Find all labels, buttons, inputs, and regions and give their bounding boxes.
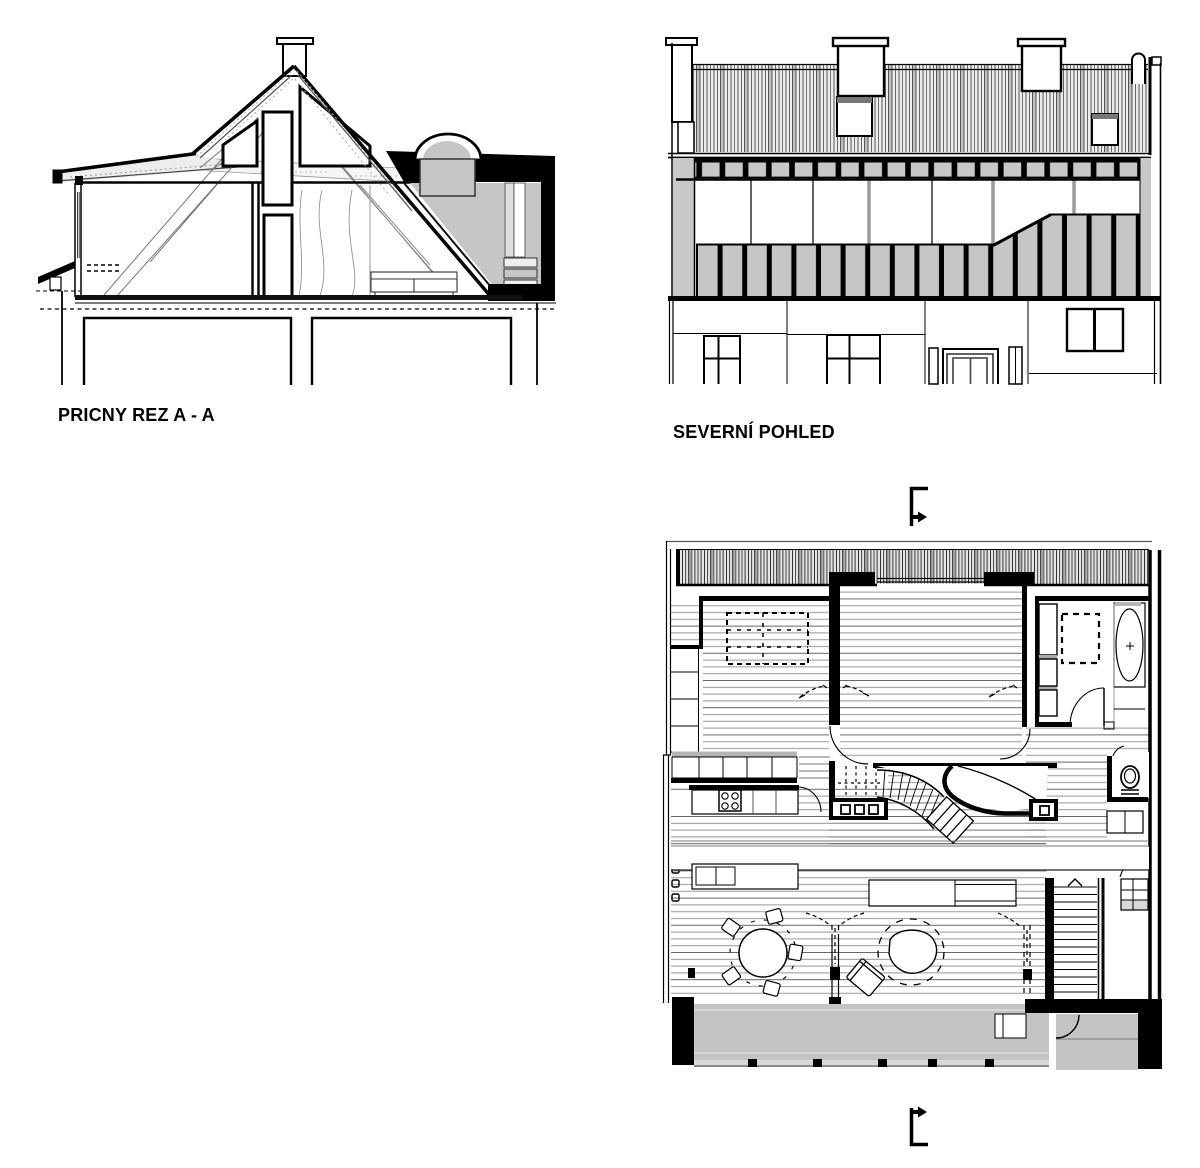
svg-text:PRICNY REZ A - A: PRICNY REZ A - A [58, 405, 215, 425]
svg-text:SEVERNÍ POHLED: SEVERNÍ POHLED [673, 421, 835, 442]
